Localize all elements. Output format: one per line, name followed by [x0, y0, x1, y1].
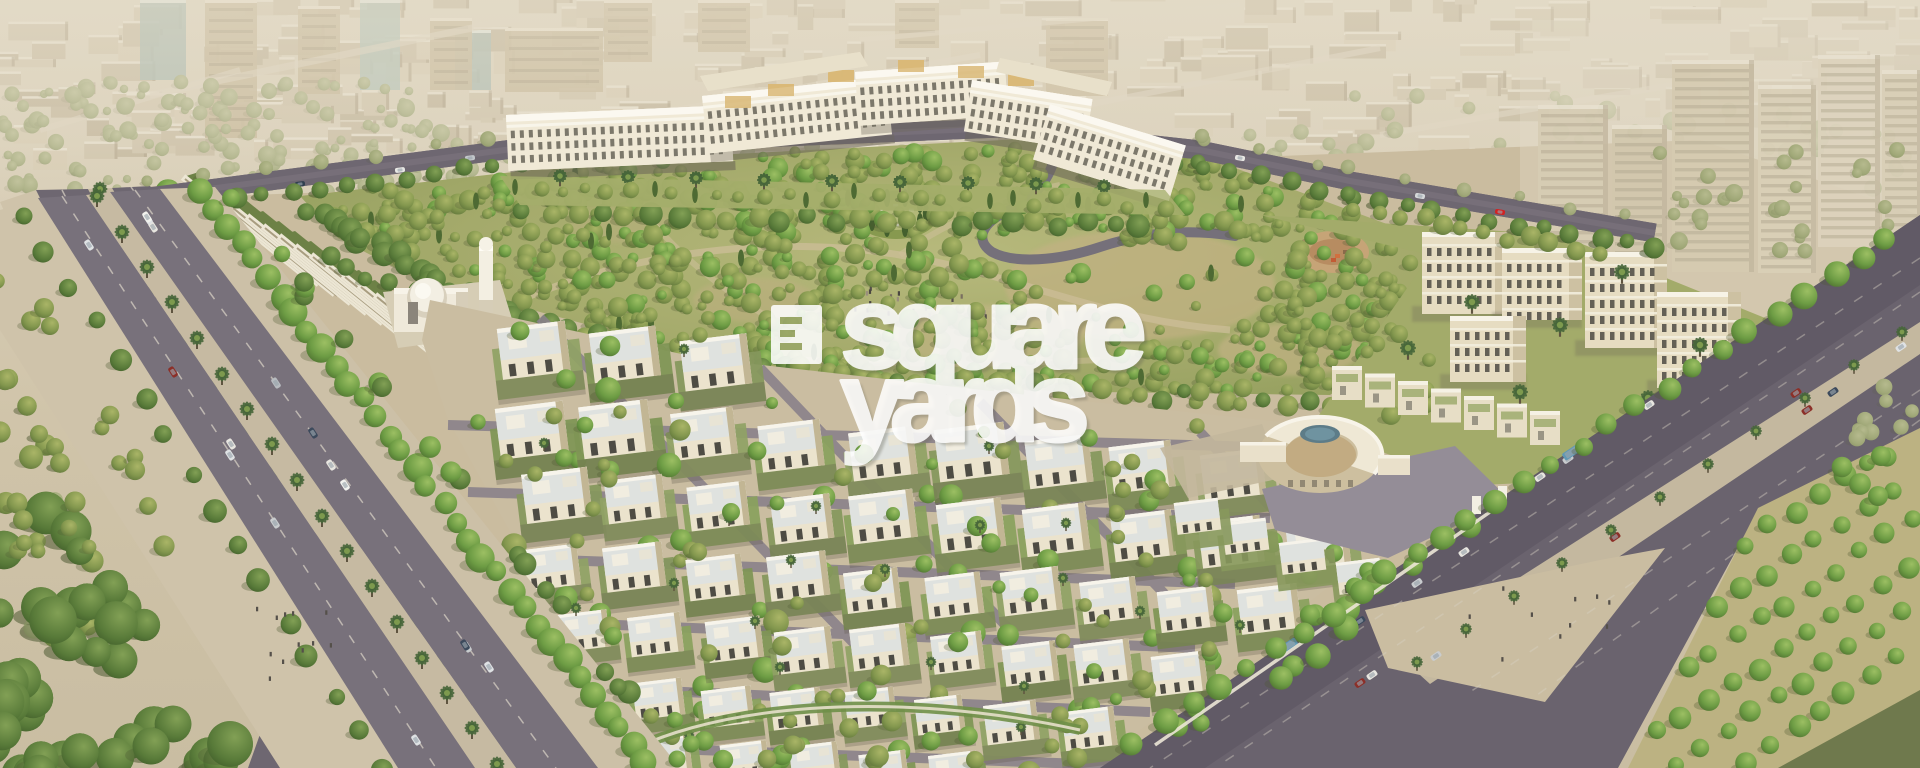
svg-text:yards: yards — [840, 339, 1090, 466]
